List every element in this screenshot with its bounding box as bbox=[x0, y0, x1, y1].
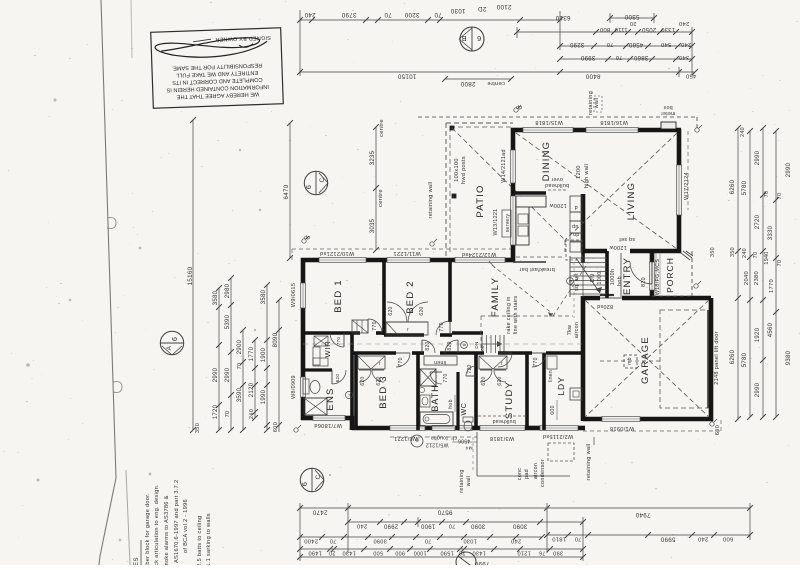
svg-text:dn: dn bbox=[573, 231, 579, 237]
svg-text:W9/0615: W9/0615 bbox=[291, 283, 297, 308]
svg-text:70: 70 bbox=[434, 11, 442, 18]
svg-text:240: 240 bbox=[681, 41, 691, 47]
svg-text:2100: 2100 bbox=[496, 3, 511, 10]
svg-text:W8/0909: W8/0909 bbox=[291, 375, 297, 399]
svg-text:AS1670.6-1997 and part 3.7.2: AS1670.6-1997 and part 3.7.2 bbox=[174, 480, 180, 563]
svg-text:240: 240 bbox=[740, 127, 746, 137]
svg-text:3790: 3790 bbox=[341, 11, 356, 18]
svg-text:W12/2124sd: W12/2124sd bbox=[462, 251, 496, 257]
svg-text:linen: linen bbox=[548, 370, 554, 382]
svg-text:3090: 3090 bbox=[373, 538, 387, 544]
svg-text:240: 240 bbox=[249, 409, 255, 419]
svg-text:4506: 4506 bbox=[458, 438, 470, 444]
svg-text:2990: 2990 bbox=[383, 523, 398, 529]
svg-text:W15/1818: W15/1818 bbox=[535, 119, 563, 125]
svg-text:800: 800 bbox=[600, 26, 611, 32]
svg-text:2990: 2990 bbox=[755, 382, 761, 397]
svg-text:dp: dp bbox=[304, 234, 310, 240]
svg-text:1000: 1000 bbox=[413, 550, 426, 556]
svg-text:NOTES: NOTES bbox=[133, 557, 140, 565]
svg-text:s: s bbox=[568, 279, 574, 282]
svg-text:3590: 3590 bbox=[237, 387, 243, 402]
svg-text:70: 70 bbox=[237, 363, 243, 370]
svg-text:DN: DN bbox=[474, 341, 479, 348]
svg-text:conc: conc bbox=[517, 468, 523, 481]
svg-text:70: 70 bbox=[225, 411, 231, 418]
svg-text:350: 350 bbox=[730, 247, 736, 257]
svg-text:3580: 3580 bbox=[261, 289, 267, 304]
svg-text:sq set: sq set bbox=[619, 236, 635, 242]
svg-text:2470: 2470 bbox=[312, 509, 327, 516]
svg-text:W10/2121sd: W10/2121sd bbox=[320, 250, 354, 256]
svg-text:pad: pad bbox=[524, 469, 530, 479]
svg-text:wall: wall bbox=[594, 98, 600, 110]
svg-text:W2/2115sd: W2/2115sd bbox=[543, 433, 574, 439]
svg-text:1200w: 1200w bbox=[549, 202, 566, 208]
svg-text:B: B bbox=[461, 34, 466, 43]
svg-text:3580: 3580 bbox=[213, 290, 219, 305]
svg-text:1430: 1430 bbox=[342, 550, 356, 556]
svg-text:1770: 1770 bbox=[769, 279, 775, 293]
svg-text:8400: 8400 bbox=[585, 73, 600, 80]
svg-text:620: 620 bbox=[481, 376, 487, 385]
svg-text:3035: 3035 bbox=[370, 218, 376, 233]
svg-text:820: 820 bbox=[447, 341, 453, 350]
svg-text:1940: 1940 bbox=[764, 251, 770, 264]
svg-text:W11/1221: W11/1221 bbox=[393, 250, 420, 256]
svg-text:centre: centre bbox=[379, 119, 385, 137]
svg-text:10150: 10150 bbox=[397, 73, 416, 80]
svg-text:9570: 9570 bbox=[437, 509, 452, 516]
svg-text:high wall: high wall bbox=[584, 164, 590, 188]
svg-text:5300: 5300 bbox=[624, 13, 639, 20]
svg-text:6260: 6260 bbox=[730, 179, 736, 194]
svg-text:Smoke alarms to AS3786 &: Smoke alarms to AS3786 & bbox=[164, 495, 170, 565]
svg-text:9380: 9380 bbox=[786, 350, 792, 365]
svg-text:620: 620 bbox=[497, 376, 503, 385]
svg-text:1200w: 1200w bbox=[609, 244, 626, 250]
svg-text:aircon: aircon bbox=[574, 322, 580, 338]
svg-text:6260: 6260 bbox=[730, 349, 736, 364]
svg-text:3200: 3200 bbox=[404, 11, 419, 18]
svg-text:3090: 3090 bbox=[470, 523, 485, 529]
svg-text:C: C bbox=[315, 475, 322, 480]
svg-text:70: 70 bbox=[764, 191, 770, 198]
svg-text:1900: 1900 bbox=[261, 347, 267, 362]
svg-text:up: up bbox=[572, 223, 579, 229]
svg-text:70: 70 bbox=[384, 11, 392, 18]
svg-text:240: 240 bbox=[304, 11, 315, 18]
svg-text:box: box bbox=[663, 104, 672, 110]
svg-text:PATIO: PATIO bbox=[475, 184, 486, 217]
svg-text:20: 20 bbox=[459, 550, 466, 556]
svg-text:2900: 2900 bbox=[237, 339, 243, 354]
svg-text:770: 770 bbox=[443, 373, 449, 382]
svg-text:centre: centre bbox=[378, 189, 384, 207]
svg-text:70: 70 bbox=[777, 260, 783, 267]
svg-text:240: 240 bbox=[698, 536, 709, 542]
svg-text:6310: 6310 bbox=[555, 14, 570, 21]
svg-text:6: 6 bbox=[304, 185, 313, 189]
svg-text:820sd: 820sd bbox=[597, 303, 613, 309]
svg-text:C: C bbox=[319, 178, 326, 183]
svg-text:7940: 7940 bbox=[635, 511, 650, 518]
svg-text:sq. set: sq. set bbox=[574, 273, 580, 291]
svg-text:W5/1212: W5/1212 bbox=[426, 442, 449, 448]
svg-text:7990: 7990 bbox=[474, 560, 489, 565]
svg-text:1990: 1990 bbox=[261, 389, 267, 404]
svg-text:70: 70 bbox=[777, 193, 783, 200]
svg-text:2120: 2120 bbox=[249, 382, 255, 397]
svg-text:breakfast bar: breakfast bar bbox=[519, 266, 554, 272]
svg-text:350: 350 bbox=[195, 423, 201, 433]
svg-text:70: 70 bbox=[753, 252, 759, 259]
svg-text:4560: 4560 bbox=[628, 41, 643, 47]
svg-text:A: A bbox=[166, 345, 173, 350]
svg-text:W1/0918: W1/0918 bbox=[610, 425, 635, 431]
svg-text:W7/1806d: W7/1806d bbox=[314, 422, 342, 428]
svg-text:2990: 2990 bbox=[755, 150, 761, 165]
svg-text:W3/1818: W3/1818 bbox=[490, 435, 515, 441]
svg-text:15160: 15160 bbox=[187, 266, 194, 285]
svg-text:2040: 2040 bbox=[744, 271, 750, 285]
svg-text:BATH: BATH bbox=[430, 384, 440, 411]
svg-text:over: over bbox=[551, 176, 563, 182]
svg-text:3235: 3235 bbox=[370, 150, 376, 165]
svg-text:76: 76 bbox=[539, 550, 546, 556]
svg-text:retaining wall: retaining wall bbox=[586, 444, 592, 481]
svg-text:dp: dp bbox=[516, 104, 522, 110]
svg-text:240: 240 bbox=[742, 248, 748, 258]
svg-text:hob: hob bbox=[448, 399, 454, 409]
svg-text:1490: 1490 bbox=[308, 550, 322, 556]
svg-text:600: 600 bbox=[273, 422, 279, 432]
svg-text:620: 620 bbox=[388, 306, 394, 315]
svg-text:6: 6 bbox=[477, 34, 481, 43]
svg-text:r: r bbox=[379, 361, 381, 367]
svg-text:5780: 5780 bbox=[742, 352, 748, 367]
svg-text:M4: M4 bbox=[465, 445, 472, 451]
svg-text:timber block for garage door.: timber block for garage door. bbox=[145, 493, 151, 565]
svg-text:1920: 1920 bbox=[755, 327, 761, 342]
svg-text:5990: 5990 bbox=[660, 536, 675, 543]
svg-text:B: B bbox=[415, 437, 419, 443]
svg-text:4560: 4560 bbox=[768, 322, 774, 337]
svg-text:r: r bbox=[407, 327, 409, 333]
svg-text:2800: 2800 bbox=[460, 80, 475, 87]
svg-text:line with stairs: line with stairs bbox=[513, 296, 519, 335]
svg-text:bulkhead: bulkhead bbox=[492, 418, 515, 424]
svg-text:6: 6 bbox=[300, 482, 309, 486]
svg-text:70: 70 bbox=[575, 536, 582, 542]
svg-text:3330: 3330 bbox=[768, 225, 774, 240]
svg-text:70: 70 bbox=[607, 41, 614, 47]
svg-text:240: 240 bbox=[679, 20, 690, 26]
svg-text:5390: 5390 bbox=[225, 314, 231, 329]
svg-text:7kw: 7kw bbox=[567, 325, 573, 336]
svg-text:20: 20 bbox=[630, 20, 637, 26]
svg-text:1000h: 1000h bbox=[610, 269, 616, 286]
svg-text:1720: 1720 bbox=[213, 404, 219, 419]
svg-text:3290: 3290 bbox=[569, 41, 584, 47]
svg-text:340: 340 bbox=[679, 54, 689, 60]
svg-text:R1.1 sarking to walls: R1.1 sarking to walls bbox=[206, 513, 212, 565]
svg-text:rake ceiling in: rake ceiling in bbox=[506, 296, 512, 333]
svg-text:2400: 2400 bbox=[304, 538, 318, 544]
svg-text:770: 770 bbox=[533, 357, 539, 367]
svg-text:2990: 2990 bbox=[213, 367, 219, 382]
svg-text:820: 820 bbox=[641, 277, 647, 287]
svg-text:1330: 1330 bbox=[661, 26, 675, 32]
svg-text:450: 450 bbox=[686, 73, 697, 79]
svg-text:20: 20 bbox=[329, 550, 336, 556]
svg-text:2990: 2990 bbox=[225, 367, 231, 382]
svg-text:ENTRY: ENTRY bbox=[622, 257, 633, 295]
svg-text:W17/2124: W17/2124 bbox=[684, 172, 690, 200]
svg-text:W16/1818: W16/1818 bbox=[600, 119, 628, 125]
svg-text:770: 770 bbox=[439, 322, 445, 332]
svg-text:GARAGE: GARAGE bbox=[640, 336, 651, 384]
svg-text:1770: 1770 bbox=[249, 346, 255, 361]
svg-text:770: 770 bbox=[398, 357, 404, 367]
svg-text:aircon: aircon bbox=[533, 463, 539, 479]
svg-text:2380: 2380 bbox=[754, 271, 760, 285]
svg-text:5780: 5780 bbox=[742, 180, 748, 195]
svg-text:cfr. toughn.: cfr. toughn. bbox=[429, 435, 457, 441]
svg-text:770: 770 bbox=[336, 337, 341, 346]
svg-text:620: 620 bbox=[419, 306, 425, 315]
svg-text:1430: 1430 bbox=[472, 550, 486, 556]
svg-text:900: 900 bbox=[395, 550, 405, 556]
svg-text:W13/1221: W13/1221 bbox=[493, 209, 499, 236]
svg-text:240: 240 bbox=[357, 523, 368, 529]
svg-text:1590: 1590 bbox=[440, 550, 454, 556]
svg-text:2148 panel lift door: 2148 panel lift door bbox=[714, 331, 720, 385]
svg-text:240: 240 bbox=[511, 538, 521, 544]
svg-text:LIVING: LIVING bbox=[626, 182, 637, 220]
svg-text:100x100: 100x100 bbox=[454, 158, 460, 182]
svg-text:2050: 2050 bbox=[641, 26, 656, 32]
svg-text:70: 70 bbox=[449, 523, 456, 529]
svg-text:6: 6 bbox=[170, 337, 179, 341]
svg-text:770: 770 bbox=[372, 321, 378, 331]
svg-text:600: 600 bbox=[715, 425, 721, 435]
svg-text:of BCA vol.2 - 1996: of BCA vol.2 - 1996 bbox=[183, 499, 189, 553]
svg-text:620: 620 bbox=[360, 376, 366, 385]
svg-text:1110: 1110 bbox=[614, 26, 627, 32]
svg-text:390: 390 bbox=[553, 550, 563, 556]
svg-text:8090: 8090 bbox=[272, 332, 279, 347]
svg-text:FAMILY: FAMILY bbox=[490, 277, 501, 317]
svg-text:LDY: LDY bbox=[556, 376, 566, 396]
svg-text:condensor: condensor bbox=[540, 459, 546, 487]
svg-text:DN: DN bbox=[590, 274, 596, 282]
svg-text:2D: 2D bbox=[478, 5, 487, 12]
svg-text:3090: 3090 bbox=[512, 523, 527, 529]
svg-text:BED 2: BED 2 bbox=[405, 280, 416, 313]
svg-text:620: 620 bbox=[335, 374, 340, 383]
svg-text:retaining wall: retaining wall bbox=[428, 182, 434, 219]
svg-text:d: d bbox=[574, 204, 577, 210]
svg-text:70: 70 bbox=[330, 538, 337, 544]
svg-text:540: 540 bbox=[661, 41, 671, 47]
svg-text:r: r bbox=[501, 361, 503, 367]
svg-text:720: 720 bbox=[467, 364, 473, 373]
svg-text:DINING: DINING bbox=[541, 141, 552, 181]
svg-text:brick articulation to eng. des: brick articulation to eng. design. bbox=[154, 484, 160, 565]
svg-text:linen: linen bbox=[434, 359, 446, 365]
svg-text:hwd posts: hwd posts bbox=[461, 156, 467, 184]
svg-text:wall: wall bbox=[466, 476, 472, 488]
svg-text:500: 500 bbox=[373, 550, 383, 556]
svg-text:WC: WC bbox=[461, 403, 468, 416]
svg-text:3990: 3990 bbox=[580, 54, 595, 60]
svg-text:1210: 1210 bbox=[517, 550, 531, 556]
svg-text:1030: 1030 bbox=[463, 538, 477, 544]
svg-text:620: 620 bbox=[376, 376, 382, 385]
svg-text:retaining: retaining bbox=[459, 469, 465, 492]
svg-text:PORCH: PORCH bbox=[665, 257, 675, 293]
svg-text:2990: 2990 bbox=[786, 162, 792, 177]
svg-text:1030: 1030 bbox=[450, 7, 465, 14]
svg-text:2720: 2720 bbox=[755, 214, 761, 229]
svg-text:1900: 1900 bbox=[420, 523, 435, 529]
svg-text:servery: servery bbox=[505, 214, 511, 233]
svg-text:1810: 1810 bbox=[552, 536, 566, 542]
svg-text:hob: hob bbox=[617, 276, 623, 286]
svg-text:2980: 2980 bbox=[225, 283, 231, 298]
svg-text:70: 70 bbox=[616, 54, 623, 60]
svg-text:820: 820 bbox=[425, 341, 431, 350]
svg-text:STUDY: STUDY bbox=[504, 381, 515, 419]
svg-text:R2.5 batts to ceiling: R2.5 batts to ceiling bbox=[197, 516, 203, 565]
svg-text:6470: 6470 bbox=[283, 184, 290, 199]
svg-text:70: 70 bbox=[425, 538, 432, 544]
svg-text:3860: 3860 bbox=[633, 54, 648, 60]
svg-text:1000: 1000 bbox=[597, 271, 603, 284]
svg-text:BED 1: BED 1 bbox=[333, 279, 344, 312]
svg-text:600: 600 bbox=[723, 536, 734, 542]
svg-text:600: 600 bbox=[550, 405, 556, 415]
svg-text:W14/2121ad: W14/2121ad bbox=[501, 149, 507, 183]
svg-text:centre: centre bbox=[487, 80, 505, 86]
svg-text:350: 350 bbox=[710, 247, 716, 257]
